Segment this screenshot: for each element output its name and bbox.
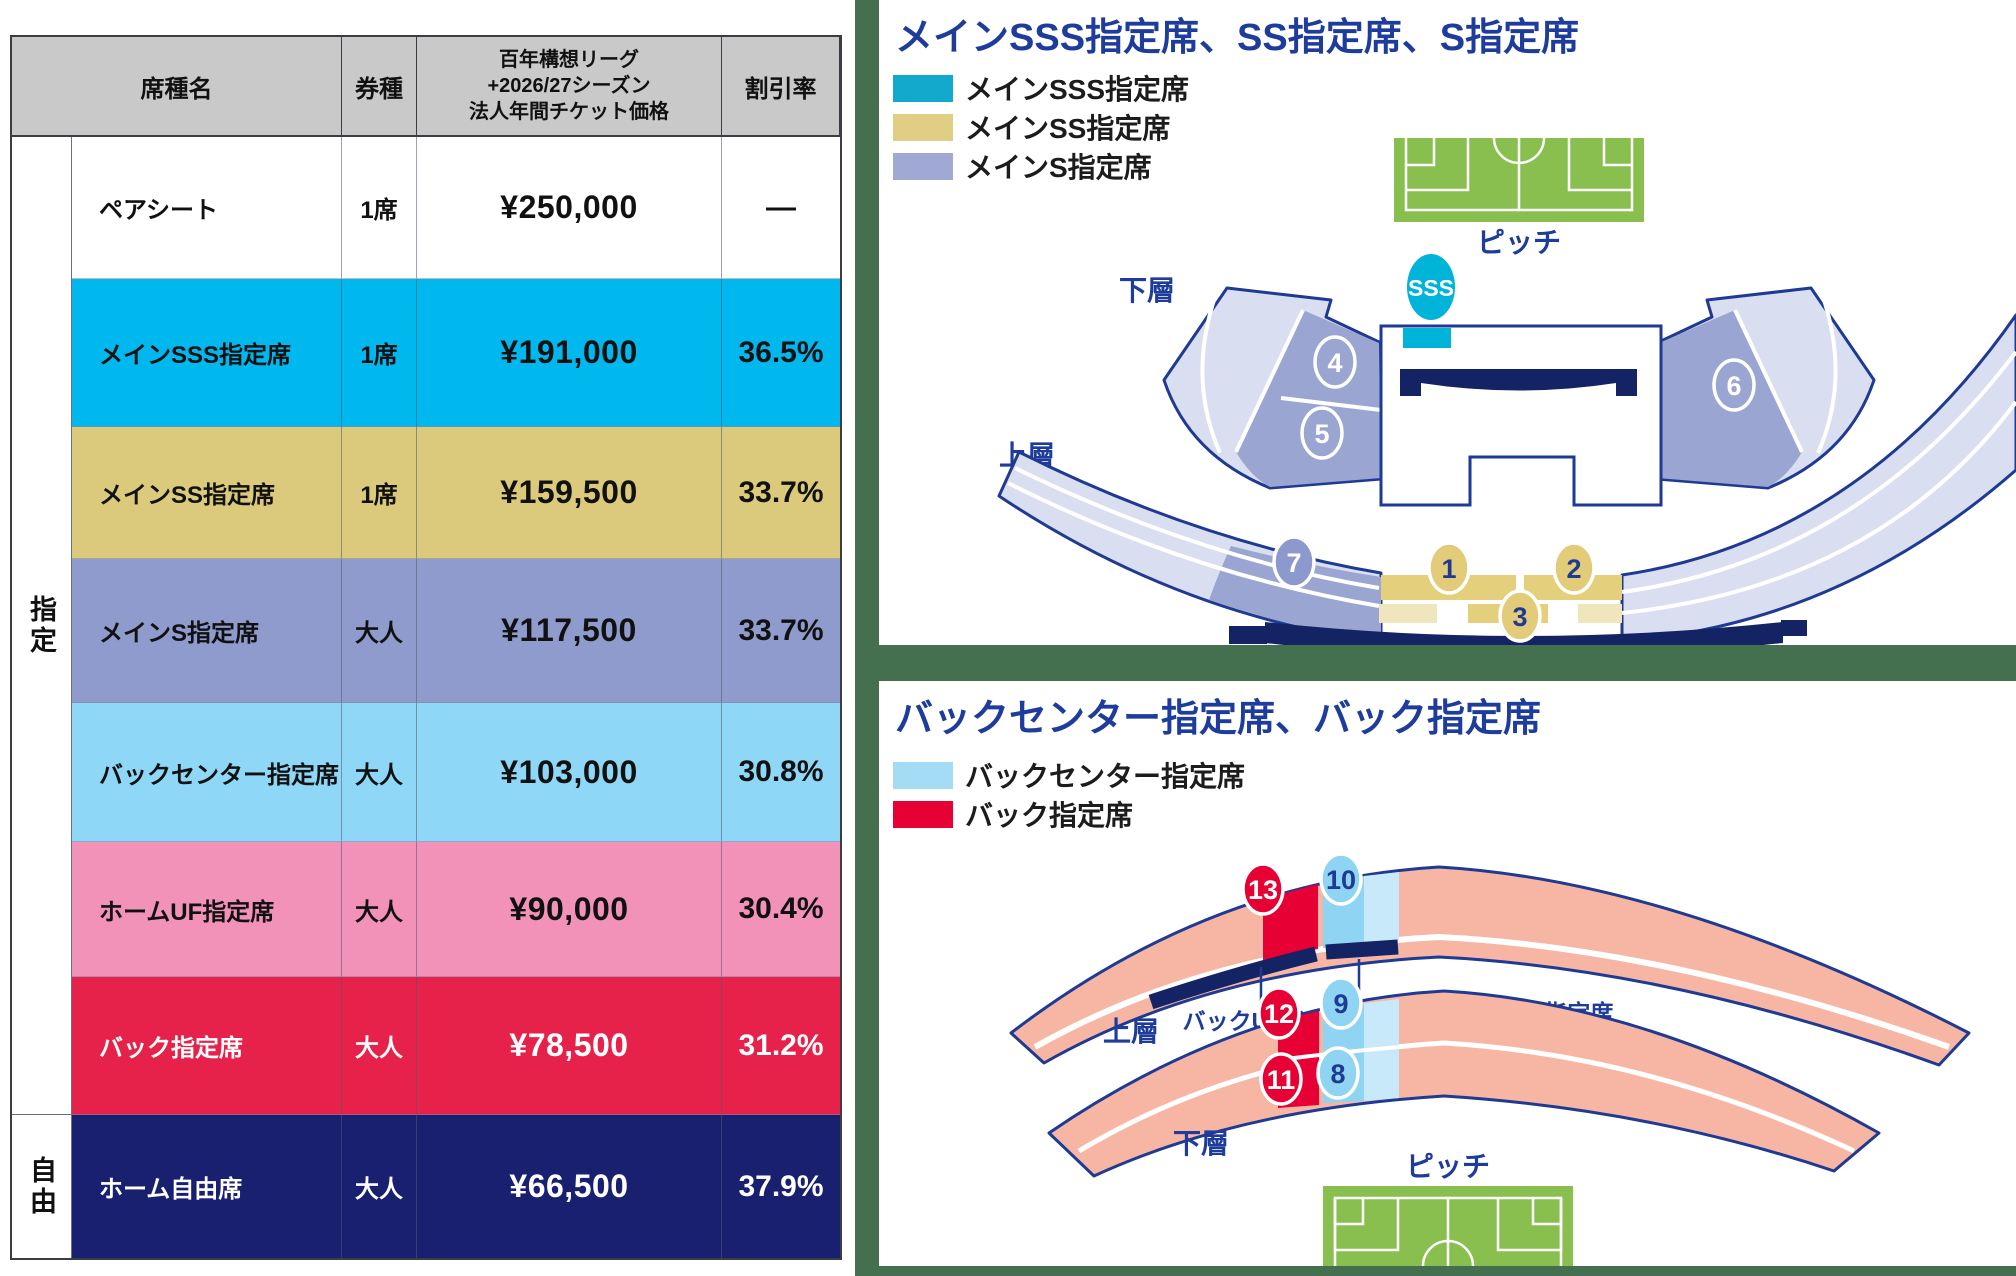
ticket-type-cell: 1席: [342, 427, 417, 559]
marker-number: 4: [1327, 348, 1342, 378]
sss-section-block: [1403, 328, 1451, 348]
ticket-type-cell: 大人: [342, 703, 417, 842]
lower-tier-label-top: 下層: [1119, 275, 1175, 306]
upper-tier-label-bottom: 上層: [1103, 1016, 1159, 1047]
legend-item: メインSSS指定席: [893, 74, 1189, 102]
marker-number: 2: [1566, 554, 1581, 584]
pitch-label-bottom: ピッチ: [1406, 1151, 1490, 1182]
seat-section-marker-13: 13: [1243, 864, 1283, 914]
pitch-label-top: ピッチ: [1477, 227, 1561, 258]
header-ticket-type: 券種: [342, 37, 417, 137]
marker-number: 9: [1333, 989, 1348, 1019]
seat-name-cell: バックセンター指定席: [72, 703, 342, 842]
back-map-legend: バックセンター指定席 バック指定席: [893, 761, 1245, 839]
ticket-type-cell: 大人: [342, 842, 417, 977]
seat-section-marker-3: 3: [1500, 591, 1540, 641]
legend-swatch-main-ss: [893, 114, 953, 141]
seat-section-marker-7: 7: [1274, 537, 1314, 587]
ticket-type-cell: 大人: [342, 559, 417, 703]
header-price: 百年構想リーグ +2026/27シーズン 法人年間チケット価格: [417, 37, 722, 137]
main-stand-body: [1381, 326, 1661, 505]
marker-number: 11: [1267, 1065, 1296, 1095]
legend-label: バックセンター指定席: [965, 755, 1245, 795]
main-map-legend: メインSSS指定席 メインSS指定席 メインS指定席: [893, 74, 1189, 191]
main-map-title: メインSSS指定席、SS指定席、S指定席: [895, 6, 1579, 61]
marker-number: 7: [1286, 548, 1301, 578]
price-cell: ¥66,500: [417, 1115, 722, 1258]
sss-badge: SSS: [1407, 254, 1455, 320]
row-group-free: 自由: [12, 1115, 72, 1258]
marker-number: 3: [1512, 602, 1527, 632]
seat-section-marker-11: 11: [1261, 1054, 1301, 1104]
legend-item: メインS指定席: [893, 152, 1189, 180]
legend-swatch-back-center: [893, 762, 953, 789]
discount-cell: 37.9%: [722, 1115, 840, 1258]
legend-swatch-main-sss: [893, 75, 953, 102]
lower-tier-label-bottom: 下層: [1173, 1128, 1229, 1159]
discount-cell: 30.8%: [722, 703, 840, 842]
price-cell: ¥90,000: [417, 842, 722, 977]
seat-section-marker-12: 12: [1259, 988, 1299, 1038]
legend-label: メインSSS指定席: [965, 68, 1189, 108]
price-cell: ¥159,500: [417, 427, 722, 559]
price-cell: ¥78,500: [417, 977, 722, 1115]
price-table: 席種名 券種 百年構想リーグ +2026/27シーズン 法人年間チケット価格 割…: [10, 35, 842, 1260]
row-group-reserved: 指定: [12, 137, 72, 1115]
back-map-title: バックセンター指定席、バック指定席: [895, 687, 1541, 742]
seat-section-marker-10: 10: [1321, 854, 1361, 904]
seat-name-cell: メインSS指定席: [72, 427, 342, 559]
seat-name-cell: ペアシート: [72, 137, 342, 279]
seat-section-marker-8: 8: [1318, 1048, 1358, 1098]
legend-label: メインS指定席: [965, 146, 1152, 186]
marker-number: 6: [1726, 371, 1741, 401]
seat-name-cell: メインS指定席: [72, 559, 342, 703]
discount-cell: 33.7%: [722, 559, 840, 703]
seat-name-cell: メインSSS指定席: [72, 279, 342, 427]
price-cell: ¥191,000: [417, 279, 722, 427]
header-discount: 割引率: [722, 37, 840, 137]
marker-number: 5: [1314, 419, 1329, 449]
marker-number: 1: [1441, 554, 1456, 584]
back-stand-panel: バックUF指定席 バックセンターUF指定席 上層 下層: [879, 681, 2016, 1266]
ticket-type-cell: 大人: [342, 1115, 417, 1258]
legend-swatch-main-s: [893, 153, 953, 180]
legend-label: メインSS指定席: [965, 107, 1170, 147]
seat-section-marker-1: 1: [1429, 543, 1469, 593]
price-cell: ¥117,500: [417, 559, 722, 703]
marker-number: 8: [1330, 1059, 1345, 1089]
discount-cell: —: [722, 137, 840, 279]
seat-section-marker-9: 9: [1321, 978, 1361, 1028]
discount-cell: 36.5%: [722, 279, 840, 427]
ticket-type-cell: 1席: [342, 279, 417, 427]
price-cell: ¥103,000: [417, 703, 722, 842]
pitch-graphic-bottom: [1323, 1186, 1573, 1266]
lower-tier-left-stand: [1164, 288, 1381, 488]
price-cell: ¥250,000: [417, 137, 722, 279]
seat-name-cell: バック指定席: [72, 977, 342, 1115]
legend-item: バック指定席: [893, 800, 1245, 828]
main-stand-panel: ピッチ 下層 上層: [879, 0, 2016, 645]
seat-section-marker-2: 2: [1554, 543, 1594, 593]
pitch-graphic-top: [1394, 138, 1644, 222]
marker-number: 12: [1264, 999, 1294, 1029]
header-seat-name: 席種名: [12, 37, 342, 137]
lower-tier-right-stand: [1657, 288, 1874, 488]
legend-label: バック指定席: [965, 794, 1133, 834]
seat-name-cell: ホームUF指定席: [72, 842, 342, 977]
marker-number: 13: [1248, 875, 1278, 905]
discount-cell: 30.4%: [722, 842, 840, 977]
legend-item: バックセンター指定席: [893, 761, 1245, 789]
ticket-type-cell: 1席: [342, 137, 417, 279]
marker-number: 10: [1326, 865, 1356, 895]
legend-swatch-back: [893, 801, 953, 828]
legend-item: メインSS指定席: [893, 113, 1189, 141]
seat-name-cell: ホーム自由席: [72, 1115, 342, 1258]
discount-cell: 31.2%: [722, 977, 840, 1115]
svg-text:SSS: SSS: [1408, 275, 1454, 301]
discount-cell: 33.7%: [722, 427, 840, 559]
ticket-type-cell: 大人: [342, 977, 417, 1115]
